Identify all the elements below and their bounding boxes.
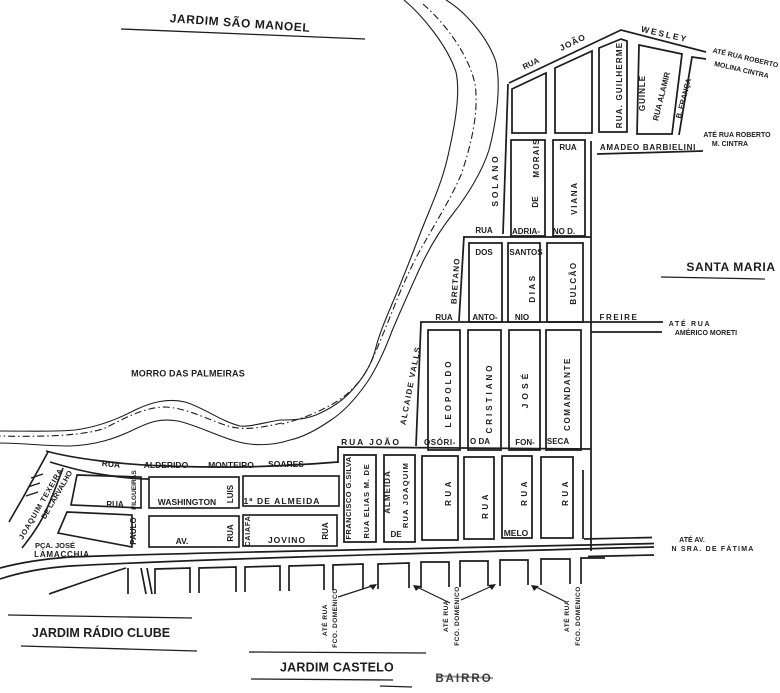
svg-text:RUA JOÃO: RUA JOÃO [341,437,401,447]
svg-text:FCO. DOMENICO: FCO. DOMENICO [454,586,461,646]
svg-text:RUA ELIAS M. DE: RUA ELIAS M. DE [362,463,371,538]
svg-text:LUIS: LUIS [226,484,235,503]
svg-text:ADRIA-: ADRIA- [512,227,540,236]
svg-text:ATÉ AV.: ATÉ AV. [679,535,705,544]
svg-text:MORAIS: MORAIS [532,138,541,177]
svg-text:RUA JOAQUIM: RUA JOAQUIM [401,462,410,528]
svg-text:BULCÃO: BULCÃO [569,261,578,304]
svg-text:NIO: NIO [515,313,529,322]
svg-text:FCO. DOMENICO: FCO. DOMENICO [575,586,582,646]
svg-text:MELO: MELO [504,528,529,538]
svg-text:RUA: RUA [561,478,570,506]
svg-text:RUA: RUA [435,313,453,322]
svg-text:SANTA MARIA: SANTA MARIA [686,260,775,274]
svg-text:JOAQUIM TEXEIRA: JOAQUIM TEXEIRA [17,466,65,541]
svg-text:JARDIM RÁDIO CLUBE: JARDIM RÁDIO CLUBE [32,625,170,640]
svg-text:ALMEIDA: ALMEIDA [383,470,392,513]
svg-text:ATÉ RUA: ATÉ RUA [669,319,712,328]
svg-text:ATÉ RUA: ATÉ RUA [320,604,329,636]
svg-text:PÇA. JOSÉ: PÇA. JOSÉ [35,541,75,550]
svg-text:RUA ALAMIR: RUA ALAMIR [651,71,672,122]
svg-text:RUA: RUA [106,500,124,509]
svg-text:RUA. GUILHERME: RUA. GUILHERME [615,42,624,129]
svg-text:FRANCISCO G.SILVA: FRANCISCO G.SILVA [344,456,353,539]
svg-text:RUA: RUA [101,458,120,470]
svg-text:NO D.: NO D. [553,227,575,236]
svg-text:DE: DE [390,530,402,539]
svg-text:ATÉ RUA: ATÉ RUA [441,600,450,632]
svg-text:CAIAFA: CAIAFA [245,516,252,547]
svg-text:JARDIM CASTELO: JARDIM CASTELO [280,661,394,675]
svg-text:SANTOS: SANTOS [509,248,543,257]
svg-text:MONTEIRO: MONTEIRO [208,460,254,470]
svg-text:SECA: SECA [547,437,569,446]
svg-text:DOS: DOS [475,248,493,257]
svg-text:RUA: RUA [481,491,490,519]
svg-text:JOVINO: JOVINO [268,535,306,545]
svg-text:LEOPOLDO: LEOPOLDO [444,359,453,428]
svg-text:RUA: RUA [444,478,453,506]
svg-text:MORRO DAS PALMEIRAS: MORRO DAS PALMEIRAS [131,369,245,379]
svg-text:SOARES: SOARES [268,459,304,469]
svg-text:RUA: RUA [475,226,493,235]
svg-text:ALDERIDO: ALDERIDO [144,460,189,470]
svg-text:ATÉ RUA ROBERTO: ATÉ RUA ROBERTO [703,130,771,139]
svg-text:VIANA: VIANA [570,181,579,215]
svg-text:N SRA. DE FÁTIMA: N SRA. DE FÁTIMA [672,544,755,553]
svg-text:FON-: FON- [515,438,535,447]
svg-text:FREIRE: FREIRE [600,313,639,322]
svg-text:FILGUEIRAS: FILGUEIRAS [131,470,138,510]
svg-text:FCO. DOMENICO: FCO. DOMENICO [332,588,339,648]
svg-text:ANTO-: ANTO- [472,313,498,322]
svg-text:1ª DE ALMEIDA: 1ª DE ALMEIDA [243,496,320,506]
svg-text:BAIRRO: BAIRRO [435,673,492,685]
svg-text:RUA: RUA [520,478,529,506]
svg-text:PAULO: PAULO [129,517,138,544]
svg-text:SOLANO: SOLANO [490,153,500,206]
svg-text:JOÃO: JOÃO [558,32,588,53]
svg-text:O DA: O DA [470,437,490,446]
svg-text:AV.: AV. [176,536,189,546]
svg-text:AMADEO BARBIELINI: AMADEO BARBIELINI [600,143,696,152]
svg-text:ATÉ RUA: ATÉ RUA [562,600,571,632]
svg-text:M. CINTRA: M. CINTRA [712,141,748,148]
svg-text:RUA: RUA [559,143,577,152]
svg-text:GUINLE: GUINLE [638,75,647,111]
svg-text:RUA: RUA [321,522,330,540]
svg-text:DE: DE [531,196,540,208]
svg-text:RUA: RUA [226,524,235,542]
svg-text:CRISTIANO: CRISTIANO [485,363,494,434]
svg-text:AMÉRICO MORETI: AMÉRICO MORETI [675,328,737,337]
svg-text:JARDIM SÃO MANOEL: JARDIM SÃO MANOEL [169,10,311,35]
svg-text:COMANDANTE: COMANDANTE [563,357,572,431]
svg-text:WASHINGTON: WASHINGTON [158,497,216,507]
svg-text:DIAS: DIAS [528,273,537,302]
svg-text:OSÓRI-: OSÓRI- [424,438,456,447]
svg-text:JOSÉ: JOSÉ [520,370,530,409]
